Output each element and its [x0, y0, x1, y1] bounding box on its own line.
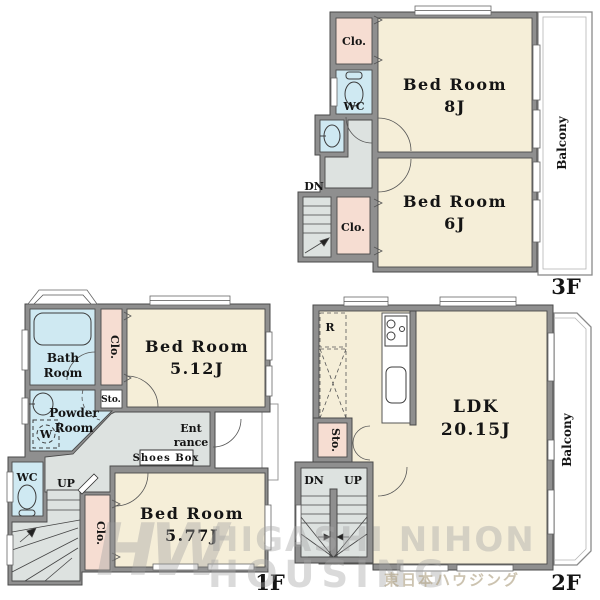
label-closet-3f-top: Clo.	[342, 35, 366, 48]
label-wc-1f: WC	[15, 471, 37, 484]
front-door-arc	[213, 419, 241, 447]
label-floor-2f: 2F	[551, 570, 581, 595]
floor-plan-2f: R Sto. DN UP LDK 20.15J Balcony 2F	[295, 297, 591, 595]
floor-plan-1f: Bath Room Clo. Sto. Bed Room 5.12J Powde…	[7, 290, 285, 595]
label-up-2f: UP	[344, 474, 362, 487]
floor-plan-drawing: Bed Room 8J Bed Room 6J Clo. WC Clo. DN …	[0, 0, 600, 600]
label-storage-1f: Sto.	[101, 395, 121, 405]
label-powder-1: Powder	[49, 406, 99, 420]
label-entrance-2: rance	[174, 436, 209, 449]
label-closet-1f-top: Clo.	[108, 335, 121, 359]
label-bedroom-577-name: Bed Room	[140, 504, 244, 523]
label-bedroom-8j-size: 8J	[444, 97, 466, 116]
label-floor-3f: 3F	[551, 274, 581, 299]
label-ldk-name: LDK	[453, 397, 499, 417]
label-bedroom-6j-size: 6J	[444, 214, 466, 233]
floor-plan-3f: Bed Room 8J Bed Room 6J Clo. WC Clo. DN …	[298, 6, 592, 299]
kitchen-counter	[382, 313, 410, 423]
label-powder-2: Room	[55, 421, 94, 435]
label-bath-1: Bath	[47, 351, 79, 365]
label-bedroom-512-name: Bed Room	[145, 337, 249, 356]
room-bedroom-512	[127, 309, 265, 407]
label-fridge: R	[325, 321, 335, 334]
bay-window-1f	[28, 290, 97, 304]
label-floor-1f: 1F	[255, 570, 285, 595]
label-bedroom-512-size: 5.12J	[170, 359, 224, 378]
label-storage-2f: Sto.	[329, 428, 342, 452]
label-closet-3f-bottom: Clo.	[341, 221, 365, 234]
label-balcony-3f: Balcony	[555, 115, 569, 170]
label-entrance-1: Ent	[180, 422, 202, 435]
kitchen-partition-wall	[410, 311, 416, 425]
label-up-1f: UP	[57, 477, 75, 490]
label-washer: W	[39, 428, 53, 441]
stair-divider-2f	[330, 489, 337, 557]
label-ldk-size: 20.15J	[441, 420, 511, 440]
label-wc-3f: WC	[342, 100, 364, 113]
floor-plan-sheet: Bed Room 8J Bed Room 6J Clo. WC Clo. DN …	[0, 0, 600, 600]
room-bedroom-6j	[378, 158, 532, 267]
label-bedroom-8j-name: Bed Room	[403, 75, 507, 94]
label-bedroom-6j-name: Bed Room	[403, 192, 507, 211]
label-shoes-box: Shoes Box	[133, 453, 200, 464]
label-bedroom-577-size: 5.77J	[165, 526, 219, 545]
label-dn-2f: DN	[304, 474, 324, 487]
label-balcony-2f: Balcony	[560, 412, 574, 467]
label-closet-1f-bottom: Clo.	[94, 521, 107, 545]
label-bath-2: Room	[44, 366, 83, 380]
label-dn-3f: DN	[304, 180, 324, 193]
